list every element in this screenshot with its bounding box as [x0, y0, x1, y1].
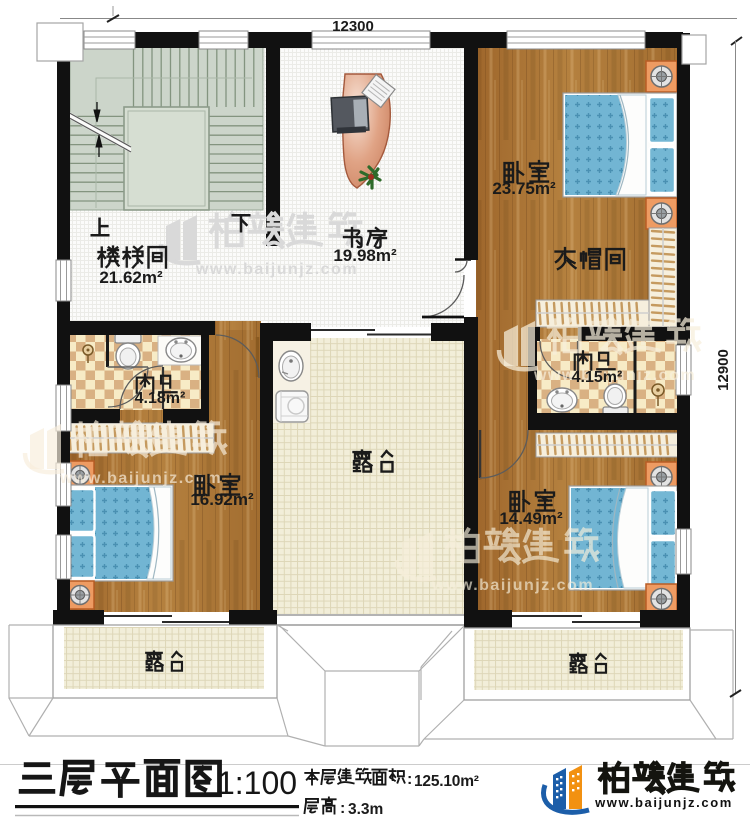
svg-text:16.92m²: 16.92m² [190, 490, 254, 509]
svg-text::: : [340, 800, 345, 817]
svg-text:www.baijunjz.com: www.baijunjz.com [431, 577, 594, 594]
svg-text:4.18m²: 4.18m² [135, 390, 186, 407]
svg-text:1:100: 1:100 [217, 765, 297, 801]
svg-text:14.49m²: 14.49m² [499, 509, 563, 528]
svg-text::: : [407, 771, 412, 788]
svg-text:125.10m²: 125.10m² [414, 773, 479, 790]
svg-text:www.baijunjz.com: www.baijunjz.com [594, 795, 733, 810]
svg-text:12900: 12900 [715, 349, 732, 391]
svg-text:21.62m²: 21.62m² [99, 268, 163, 287]
svg-text:23.75m²: 23.75m² [492, 179, 556, 198]
svg-text:12300: 12300 [332, 18, 374, 35]
svg-text:3.3m: 3.3m [348, 801, 383, 818]
svg-text:4.15m²: 4.15m² [572, 369, 623, 386]
svg-text:www.baijunjz.com: www.baijunjz.com [59, 470, 222, 487]
svg-text:19.98m²: 19.98m² [333, 246, 397, 265]
